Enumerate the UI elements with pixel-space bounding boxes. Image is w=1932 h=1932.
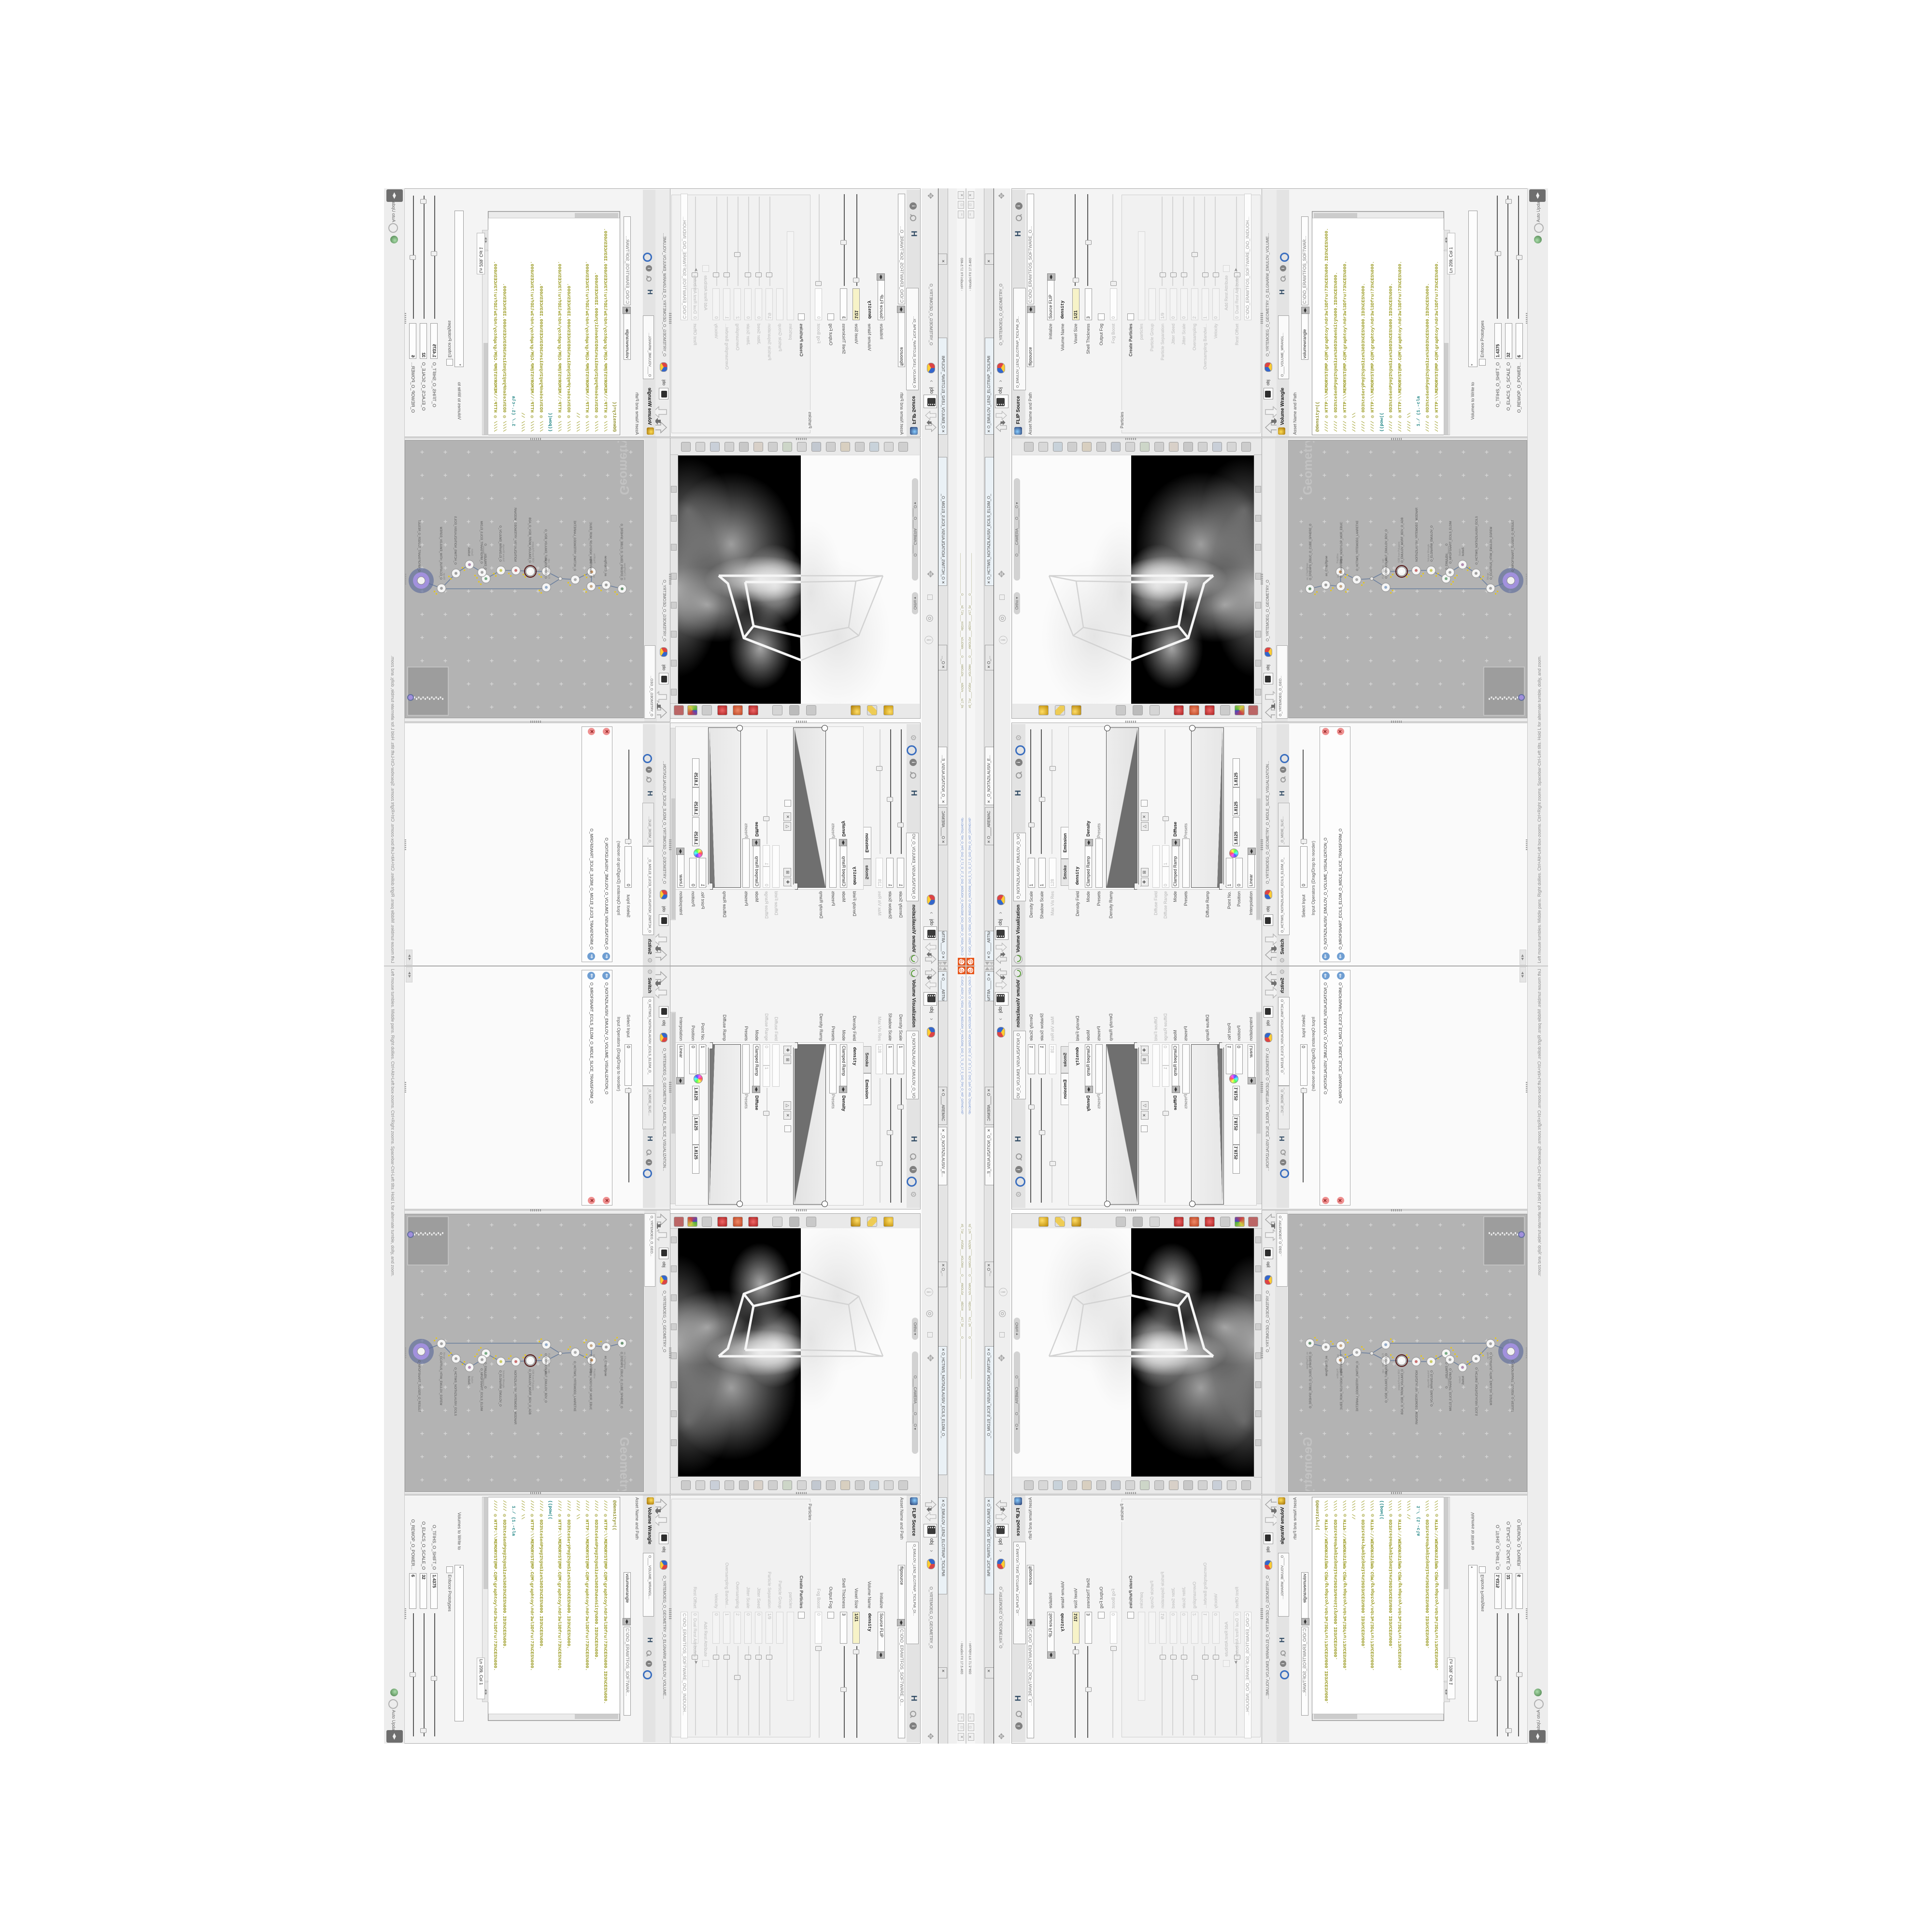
svg-text:O_ELGNARW_EMULOV_O: O_ELGNARW_EMULOV_O (1431, 526, 1434, 562)
svg-text:NOITAZILAUSIV_YRTEMOEG_MODNAR: NOITAZILAUSIV_YRTEMOEG_MODNAR (1416, 1370, 1419, 1425)
svg-text:cab: cab (547, 559, 550, 563)
svg-text:O_ECAFRUS_HTIW_EMULOV_EGREM: O_ECAFRUS_HTIW_EMULOV_EGREM (439, 527, 442, 580)
svg-text:hctiwS: hctiwS (467, 547, 470, 556)
svg-text:O_HCTIWS_YRTEMOEG_LANRETXE: O_HCTIWS_YRTEMOEG_LANRETXE (1356, 521, 1359, 571)
svg-text:btg: btg (589, 559, 592, 563)
svg-text:O_EREHPS_EBUC_O_CUBE_SPHERE_O: O_EREHPS_EBUC_O_CUBE_SPHERE_O (620, 524, 623, 580)
svg-text:O_EMARFERIW_NOGYLOP_MOR_EBUC: O_EMARFERIW_NOGYLOP_MOR_EBUC (589, 522, 592, 578)
svg-text:cab: cab (544, 558, 547, 563)
svg-text:O_MROFSNART_ECILS_ELDIM: O_MROFSNART_ECILS_ELDIM (480, 1368, 483, 1411)
svg-text:O_HCTIWS_YRTEMOEG_LANRETXE: O_HCTIWS_YRTEMOEG_LANRETXE (1356, 1361, 1359, 1411)
svg-text:O_MROFSNART_TLUSER_O_RESULT: O_MROFSNART_TLUSER_O_RESULT (1512, 520, 1515, 572)
svg-text:O_MROFSNART_TLUSER_O_RESULT: O_MROFSNART_TLUSER_O_RESULT (417, 520, 420, 572)
svg-text:FLIP Source: FLIP Source (1382, 565, 1385, 579)
svg-text:Transform: Transform (1446, 1368, 1449, 1379)
svg-text:ao_C7ap2fgvae: ao_C7ap2fgvae (1306, 563, 1309, 580)
svg-text:O_ELGNARW_EMULOV_O: O_ELGNARW_EMULOV_O (1431, 1370, 1434, 1406)
svg-text:VDB from Polygons: VDB from Polygons (1398, 1369, 1401, 1391)
svg-text:VDB from Polygons: VDB from Polygons (531, 541, 534, 563)
svg-text:Switch: Switch (1459, 549, 1462, 556)
svg-text:cab: cab (1385, 1369, 1388, 1374)
svg-text:Volume Wrangle: Volume Wrangle (1427, 1370, 1430, 1388)
svg-text:O_HCTIWS_NOITAZILAUSIV_ECILS: O_HCTIWS_NOITAZILAUSIV_ECILS (454, 516, 456, 565)
svg-text:NOITAZILAUSIV_YRTEMOEG_MODNAR: NOITAZILAUSIV_YRTEMOEG_MODNAR (513, 1370, 516, 1425)
svg-text:Switch: Switch (1459, 1376, 1462, 1383)
svg-text:Geometry: Geometry (1300, 441, 1315, 495)
svg-text:cab: cab (547, 1369, 550, 1373)
svg-text:VDB from Polygons: VDB from Polygons (1398, 541, 1401, 563)
svg-text:btg: btg (592, 1354, 595, 1358)
svg-text:Transform: Transform (483, 553, 486, 564)
svg-text:FLIP Source: FLIP Source (547, 1353, 550, 1367)
svg-text:O_EMULOV_MORF_BDV_O_ADB: O_EMULOV_MORF_BDV_O_ADB (528, 1369, 531, 1415)
svg-text:O_ELGNARW_EMULOV_O: O_ELGNARW_EMULOV_O (498, 1370, 501, 1406)
svg-text:FLIP Source: FLIP Source (1382, 1353, 1385, 1367)
svg-text:Transform: Transform (483, 1368, 486, 1379)
svg-text:btg: btg (1340, 1369, 1343, 1373)
svg-text:Switch: Switch (470, 549, 473, 556)
svg-text:cab: cab (1385, 558, 1388, 563)
svg-text:O_MROFSNART_ECILS_ELDIM: O_MROFSNART_ECILS_ELDIM (480, 521, 483, 564)
svg-text:O_HCTIWS_YRTEMOEG_LANRETXE: O_HCTIWS_YRTEMOEG_LANRETXE (573, 521, 576, 571)
svg-text:O_ECRUOS_PILF_EMULOV_BDV_O: O_ECRUOS_PILF_EMULOV_BDV_O (544, 1353, 547, 1403)
svg-text:Geometry: Geometry (617, 441, 632, 495)
svg-text:ao_C7ap2fgvae: ao_C7ap2fgvae (604, 555, 607, 576)
svg-text:O_EMULOV_MORF_BDV_O_ADB: O_EMULOV_MORF_BDV_O_ADB (1401, 517, 1404, 563)
svg-text:O_HCTIWS_YRTEMOEG_LANRETXE: O_HCTIWS_YRTEMOEG_LANRETXE (573, 1361, 576, 1411)
svg-text:ao_C7ap2fgvae: ao_C7ap2fgvae (623, 1352, 626, 1369)
svg-text:btg: btg (1340, 559, 1343, 563)
svg-text:O_MROFSNART_TLUSER_O_RESULT: O_MROFSNART_TLUSER_O_RESULT (417, 1360, 420, 1412)
svg-text:O_EMARFERIW_NOGYLOP_MOR_EBUC: O_EMARFERIW_NOGYLOP_MOR_EBUC (589, 1354, 592, 1410)
svg-text:O_EREHPS_EBUC_O_CUBE_SPHERE_O: O_EREHPS_EBUC_O_CUBE_SPHERE_O (1309, 524, 1312, 580)
svg-text:cab: cab (1382, 559, 1385, 563)
svg-text:O_ECAFRUS_HTIW_EMULOV_EGREM: O_ECAFRUS_HTIW_EMULOV_EGREM (1490, 527, 1493, 580)
svg-text:O_HCTIWS_NOITAZILAUSIV_ECILS: O_HCTIWS_NOITAZILAUSIV_ECILS (454, 1367, 456, 1416)
svg-text:Merge: Merge (1487, 573, 1490, 580)
svg-text:Merge: Merge (1487, 1352, 1490, 1359)
svg-text:O_EMARFERIW_NOGYLOP_MOR_EBUC: O_EMARFERIW_NOGYLOP_MOR_EBUC (1340, 1354, 1343, 1410)
svg-text:O_EMULOV_MORF_BDV_O_ADB: O_EMULOV_MORF_BDV_O_ADB (528, 517, 531, 563)
svg-text:Switch: Switch (470, 1376, 473, 1383)
svg-text:O_ECRUOS_PILF_EMULOV_BDV_O: O_ECRUOS_PILF_EMULOV_BDV_O (544, 529, 547, 579)
svg-text:O_ECRUOS_PILF_EMULOV_BDV_O: O_ECRUOS_PILF_EMULOV_BDV_O (1385, 1353, 1388, 1403)
svg-text:O_MROFSNART_ECILS_ELDIM: O_MROFSNART_ECILS_ELDIM (1449, 521, 1452, 564)
svg-text:ao_C7ap2fgvae: ao_C7ap2fgvae (1325, 555, 1328, 576)
svg-text:Volume Wrangle: Volume Wrangle (1427, 544, 1430, 562)
svg-text:O_ECAFRUS_HTIW_EMULOV_EGREM: O_ECAFRUS_HTIW_EMULOV_EGREM (439, 1352, 442, 1405)
svg-text:O_EREHPS_EBUC_O_CUBE_SPHERE_O: O_EREHPS_EBUC_O_CUBE_SPHERE_O (620, 1352, 623, 1408)
svg-text:NOITAZILAUSIV_YRTEMOEG_MODNAR: NOITAZILAUSIV_YRTEMOEG_MODNAR (513, 507, 516, 562)
svg-text:Transform: Transform (1446, 553, 1449, 564)
svg-text:Geometry: Geometry (617, 1437, 632, 1491)
svg-text:hctiwS: hctiwS (467, 1376, 470, 1385)
svg-text:FLIP Source: FLIP Source (547, 565, 550, 579)
svg-text:O_HCTIWS_NOITAZILAUSIV_ECILS: O_HCTIWS_NOITAZILAUSIV_ECILS (1476, 1367, 1478, 1416)
svg-text:O_ECAFRUS_HTIW_EMULOV_EGREM: O_ECAFRUS_HTIW_EMULOV_EGREM (1490, 1352, 1493, 1405)
svg-text:O_EREHPS_EBUC_O_CUBE_SPHERE_O: O_EREHPS_EBUC_O_CUBE_SPHERE_O (1309, 1352, 1312, 1408)
svg-text:ao_C7ap2fgvae: ao_C7ap2fgvae (1306, 1352, 1309, 1369)
svg-text:btg: btg (589, 1369, 592, 1373)
svg-text:Volume Wrangle: Volume Wrangle (502, 1370, 505, 1388)
svg-text:O_EMARFERIW_NOGYLOP_MOR_EBUC: O_EMARFERIW_NOGYLOP_MOR_EBUC (1340, 522, 1343, 578)
svg-text:PolyWire: PolyWire (593, 1369, 596, 1378)
svg-text:O_ELGNARW_EMULOV_O: O_ELGNARW_EMULOV_O (498, 526, 501, 562)
svg-text:PolyWire: PolyWire (593, 554, 596, 563)
svg-text:Merge: Merge (442, 573, 445, 580)
svg-text:ao_C7ap2fgvae: ao_C7ap2fgvae (604, 1356, 607, 1377)
svg-text:ao_C7ap2fgvae: ao_C7ap2fgvae (1325, 1356, 1328, 1377)
svg-text:O_MROFSNART_TLUSER_O_RESULT: O_MROFSNART_TLUSER_O_RESULT (1512, 1360, 1515, 1412)
svg-text:O_ECRUOS_PILF_EMULOV_BDV_O: O_ECRUOS_PILF_EMULOV_BDV_O (1385, 529, 1388, 579)
svg-text:btg: btg (1337, 1354, 1340, 1358)
svg-text:Geometry: Geometry (1300, 1437, 1315, 1491)
svg-text:ao_C7ap2fgvae: ao_C7ap2fgvae (623, 563, 626, 580)
svg-text:Volume Wrangle: Volume Wrangle (502, 544, 505, 562)
svg-text:VDB from Polygons: VDB from Polygons (531, 1369, 534, 1391)
svg-text:O_MROFSNART_ECILS_ELDIM: O_MROFSNART_ECILS_ELDIM (1449, 1368, 1452, 1411)
svg-text:O_HCTIWS_NOITAZILAUSIV_ECILS: O_HCTIWS_NOITAZILAUSIV_ECILS (1476, 516, 1478, 565)
svg-text:NOITAZILAUSIV_YRTEMOEG_MODNAR: NOITAZILAUSIV_YRTEMOEG_MODNAR (1416, 507, 1419, 562)
svg-text:PolyWire: PolyWire (1336, 554, 1339, 563)
svg-text:hctiwS: hctiwS (1462, 1376, 1465, 1385)
svg-text:btg: btg (592, 574, 595, 578)
svg-text:O_EMULOV_MORF_BDV_O_ADB: O_EMULOV_MORF_BDV_O_ADB (1401, 1369, 1404, 1415)
svg-text:hctiwS: hctiwS (1462, 547, 1465, 556)
svg-text:PolyWire: PolyWire (1336, 1369, 1339, 1378)
svg-text:cab: cab (1382, 1369, 1385, 1373)
svg-text:Merge: Merge (442, 1352, 445, 1359)
svg-text:btg: btg (1337, 574, 1340, 578)
svg-text:cab: cab (544, 1369, 547, 1374)
